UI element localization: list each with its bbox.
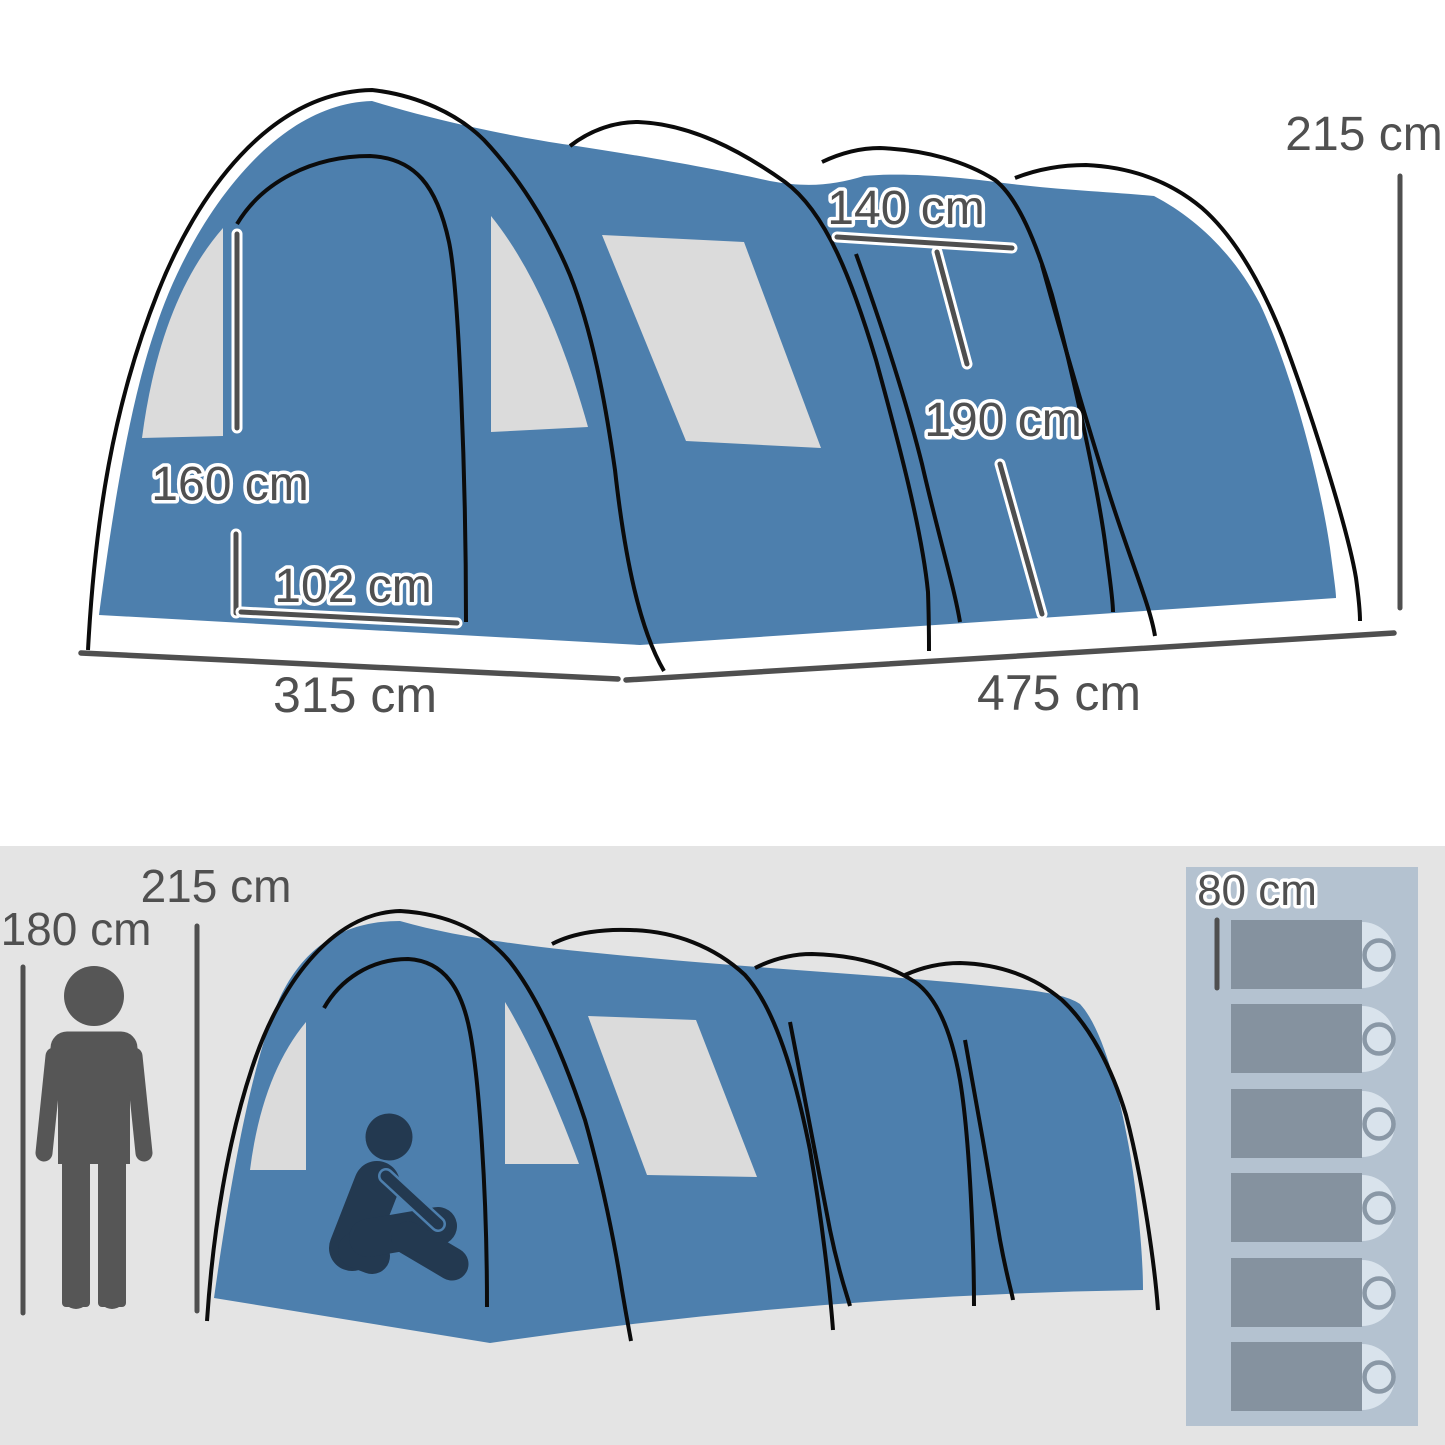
svg-text:140 cm: 140 cm [827, 182, 984, 235]
svg-text:215 cm: 215 cm [1285, 108, 1442, 161]
svg-text:475 cm: 475 cm [977, 665, 1141, 721]
svg-text:160 cm: 160 cm [151, 458, 308, 511]
svg-text:190 cm: 190 cm [924, 394, 1081, 447]
svg-text:215 cm: 215 cm [141, 860, 292, 912]
svg-text:80 cm: 80 cm [1197, 866, 1317, 915]
svg-text:102 cm: 102 cm [274, 560, 431, 613]
svg-text:180 cm: 180 cm [1, 903, 152, 955]
svg-text:315 cm: 315 cm [273, 667, 437, 723]
